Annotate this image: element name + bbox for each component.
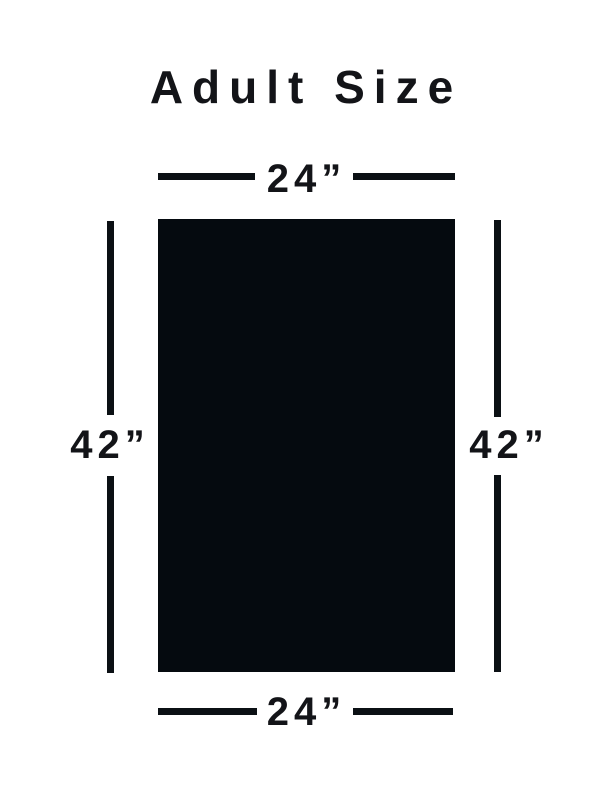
right-height-label: 42” bbox=[469, 425, 549, 465]
bottom-dimension-line-right bbox=[353, 708, 453, 715]
left-dimension-line-bottom bbox=[107, 476, 114, 673]
left-height-label: 42” bbox=[70, 425, 150, 465]
size-diagram: Adult Size 24” 42” 42” 24” bbox=[0, 0, 612, 792]
right-dimension-line-top bbox=[494, 220, 501, 417]
size-rectangle bbox=[158, 219, 455, 672]
left-dimension-line-top bbox=[107, 221, 114, 415]
right-dimension-line-bottom bbox=[494, 475, 501, 672]
top-dimension-line-right bbox=[353, 173, 455, 180]
diagram-title: Adult Size bbox=[0, 64, 612, 110]
